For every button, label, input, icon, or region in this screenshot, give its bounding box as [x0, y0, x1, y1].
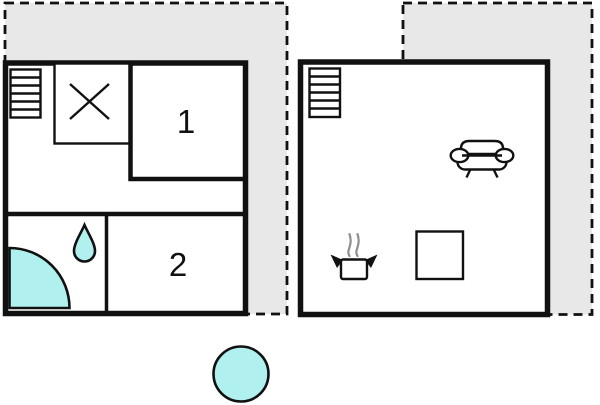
- window-stripes-icon: [11, 70, 41, 118]
- crossed-box-icon: [55, 64, 131, 144]
- room1-label: 1: [177, 103, 195, 140]
- window-stripes-icon: [310, 69, 341, 118]
- room2-label: 2: [169, 246, 187, 283]
- round-pool-icon: [214, 347, 269, 402]
- building-left: 1 2: [3, 62, 246, 314]
- floor-plan-drawing: 1 2: [0, 0, 600, 405]
- square-table-icon: [417, 232, 464, 280]
- floor-plan-canvas: 1 2: [0, 0, 600, 405]
- building-right: [301, 62, 548, 315]
